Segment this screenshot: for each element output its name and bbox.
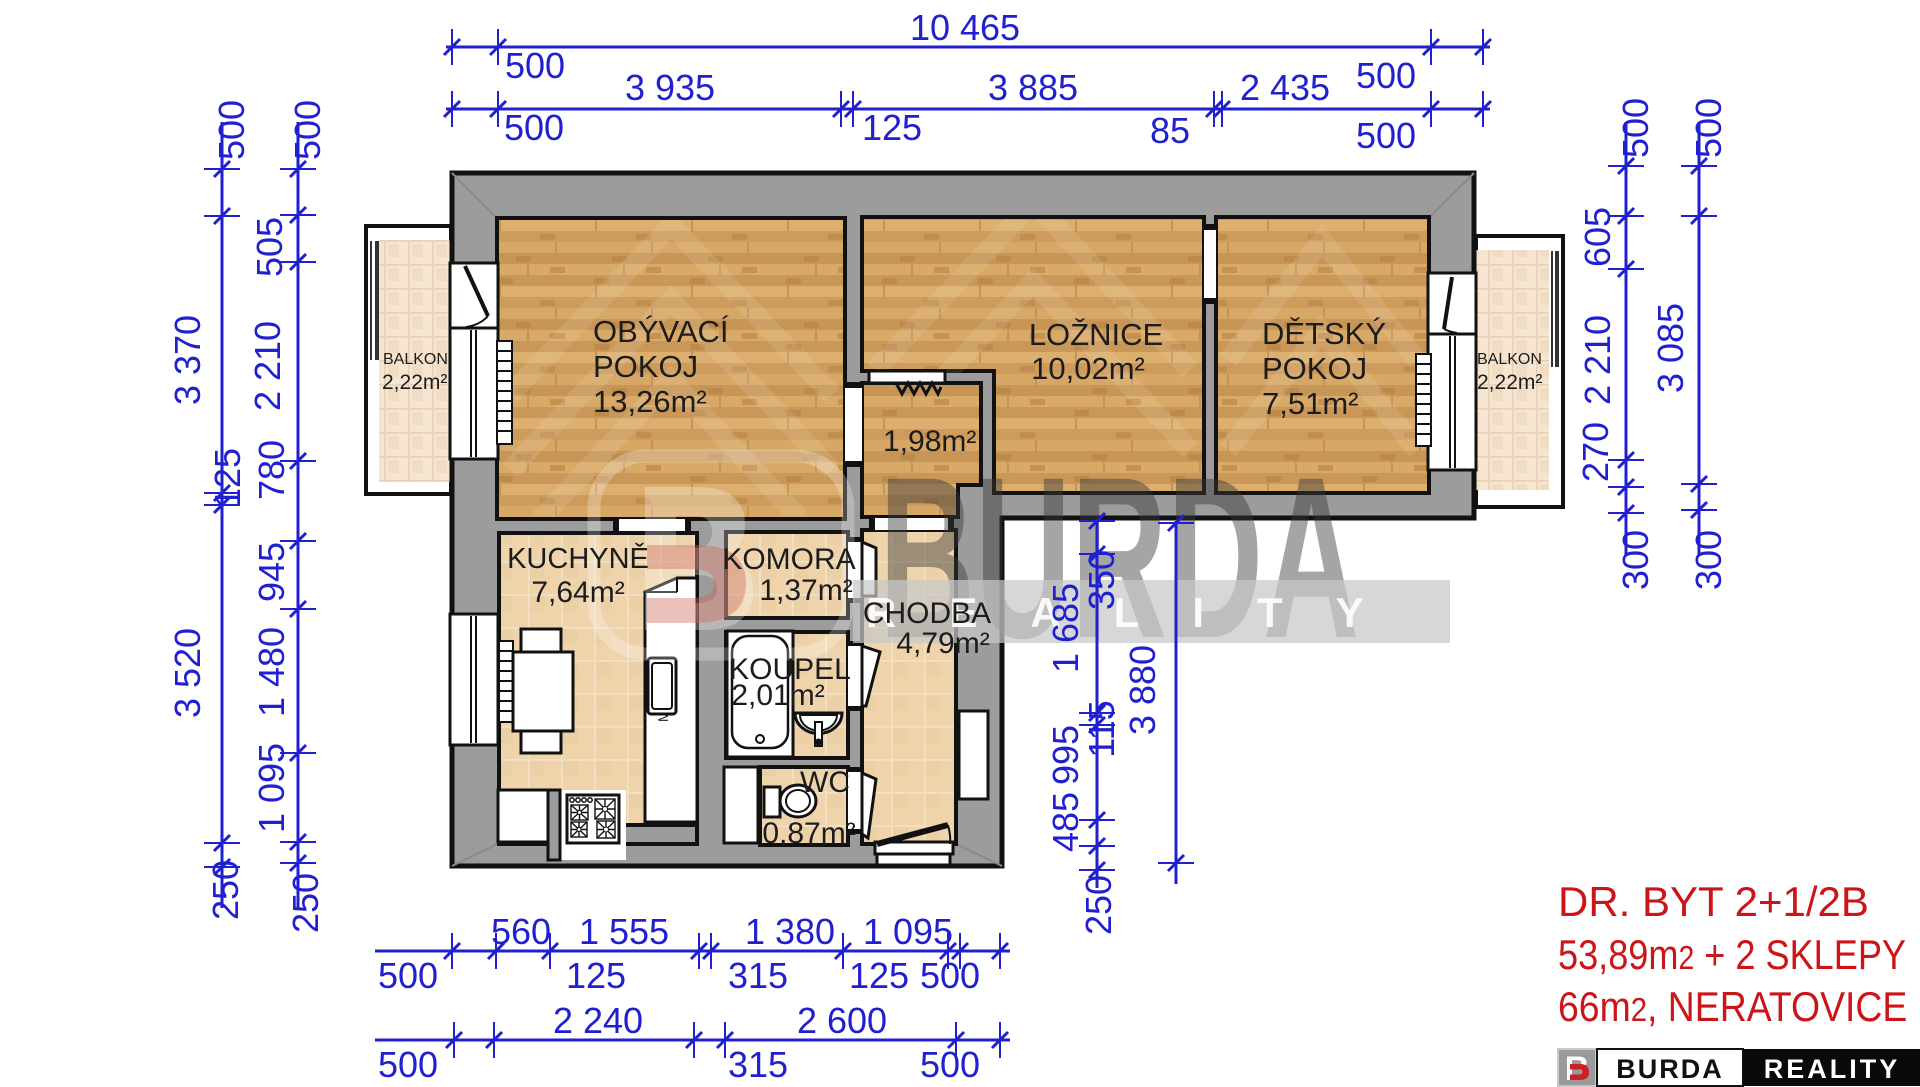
svg-text:66m2, NERATOVICE: 66m2, NERATOVICE bbox=[1558, 984, 1907, 1030]
svg-text:3 935: 3 935 bbox=[625, 67, 715, 108]
svg-text:995: 995 bbox=[1045, 725, 1086, 785]
svg-text:1 480: 1 480 bbox=[251, 627, 292, 717]
svg-text:500: 500 bbox=[378, 1044, 438, 1085]
svg-text:500: 500 bbox=[1356, 115, 1416, 156]
svg-text:1 685: 1 685 bbox=[1045, 583, 1086, 673]
svg-text:DR. BYT 2+1/2B: DR. BYT 2+1/2B bbox=[1558, 878, 1869, 925]
svg-text:125: 125 bbox=[849, 955, 909, 996]
svg-text:3 880: 3 880 bbox=[1122, 645, 1163, 735]
svg-text:2,01m²: 2,01m² bbox=[731, 679, 824, 712]
svg-text:KUCHYNĚ: KUCHYNĚ bbox=[507, 542, 649, 575]
svg-text:1 095: 1 095 bbox=[251, 743, 292, 833]
svg-text:13,26m²: 13,26m² bbox=[593, 384, 707, 419]
svg-text:7,64m²: 7,64m² bbox=[531, 576, 624, 609]
svg-text:POKOJ: POKOJ bbox=[593, 349, 698, 384]
svg-text:7,51m²: 7,51m² bbox=[1262, 386, 1358, 421]
svg-text:315: 315 bbox=[728, 955, 788, 996]
svg-text:505: 505 bbox=[249, 217, 290, 277]
svg-text:250: 250 bbox=[205, 860, 246, 920]
svg-text:10,02m²: 10,02m² bbox=[1031, 351, 1145, 386]
svg-text:250: 250 bbox=[1078, 875, 1119, 935]
svg-text:2,22m²: 2,22m² bbox=[1477, 371, 1542, 394]
svg-text:3 520: 3 520 bbox=[167, 628, 208, 718]
svg-text:4,79m²: 4,79m² bbox=[896, 627, 989, 660]
svg-text:REALITY: REALITY bbox=[1764, 1054, 1901, 1084]
svg-text:LOŽNICE: LOŽNICE bbox=[1029, 317, 1163, 352]
svg-text:945: 945 bbox=[251, 542, 292, 602]
svg-text:125: 125 bbox=[207, 448, 248, 508]
svg-text:125: 125 bbox=[566, 955, 626, 996]
svg-text:500: 500 bbox=[504, 107, 564, 148]
svg-text:3 085: 3 085 bbox=[1650, 303, 1691, 393]
svg-text:500: 500 bbox=[920, 955, 980, 996]
svg-text:500: 500 bbox=[1615, 98, 1656, 158]
svg-text:270: 270 bbox=[1575, 422, 1616, 482]
svg-text:CHODBA: CHODBA bbox=[863, 597, 991, 630]
svg-text:500: 500 bbox=[287, 100, 328, 160]
svg-text:WC: WC bbox=[800, 766, 850, 799]
svg-text:2 240: 2 240 bbox=[553, 1000, 643, 1041]
svg-text:1,37m²: 1,37m² bbox=[759, 574, 852, 607]
svg-text:780: 780 bbox=[251, 440, 292, 500]
svg-text:BALKON: BALKON bbox=[1477, 351, 1542, 368]
svg-text:3 370: 3 370 bbox=[167, 315, 208, 405]
svg-text:2 210: 2 210 bbox=[247, 321, 288, 411]
svg-text:10 465: 10 465 bbox=[910, 7, 1020, 48]
svg-text:500: 500 bbox=[211, 100, 252, 160]
svg-text:500: 500 bbox=[505, 45, 565, 86]
svg-text:KOMORA: KOMORA bbox=[722, 543, 855, 576]
svg-text:315: 315 bbox=[728, 1044, 788, 1085]
svg-text:1 380: 1 380 bbox=[745, 911, 835, 952]
svg-text:1 555: 1 555 bbox=[579, 911, 669, 952]
svg-text:350: 350 bbox=[1081, 550, 1122, 610]
svg-text:BURDA: BURDA bbox=[1616, 1054, 1724, 1084]
svg-text:0,87m²: 0,87m² bbox=[762, 817, 855, 850]
svg-text:BALKON: BALKON bbox=[383, 351, 448, 368]
svg-text:125: 125 bbox=[862, 107, 922, 148]
svg-text:POKOJ: POKOJ bbox=[1262, 351, 1367, 386]
svg-text:1,98m²: 1,98m² bbox=[883, 425, 976, 458]
svg-text:2 210: 2 210 bbox=[1577, 315, 1618, 405]
svg-text:500: 500 bbox=[1356, 55, 1416, 96]
svg-text:485: 485 bbox=[1045, 792, 1086, 852]
svg-text:53,89m2 + 2 SKLEPY: 53,89m2 + 2 SKLEPY bbox=[1558, 933, 1906, 979]
svg-text:85: 85 bbox=[1150, 110, 1190, 151]
svg-text:OBÝVACÍ: OBÝVACÍ bbox=[593, 314, 729, 349]
svg-text:605: 605 bbox=[1577, 207, 1618, 267]
svg-text:500: 500 bbox=[1688, 98, 1729, 158]
svg-text:300: 300 bbox=[1688, 530, 1729, 590]
svg-text:300: 300 bbox=[1615, 530, 1656, 590]
svg-text:2,22m²: 2,22m² bbox=[382, 371, 447, 394]
svg-text:250: 250 bbox=[285, 873, 326, 933]
svg-text:560: 560 bbox=[491, 911, 551, 952]
svg-text:DĚTSKÝ: DĚTSKÝ bbox=[1262, 316, 1386, 351]
svg-text:1 095: 1 095 bbox=[863, 911, 953, 952]
svg-text:500: 500 bbox=[920, 1044, 980, 1085]
svg-text:2 600: 2 600 bbox=[797, 1000, 887, 1041]
svg-text:115: 115 bbox=[1081, 700, 1122, 757]
svg-text:2 435: 2 435 bbox=[1240, 67, 1330, 108]
svg-text:3 885: 3 885 bbox=[988, 67, 1078, 108]
svg-text:500: 500 bbox=[378, 955, 438, 996]
